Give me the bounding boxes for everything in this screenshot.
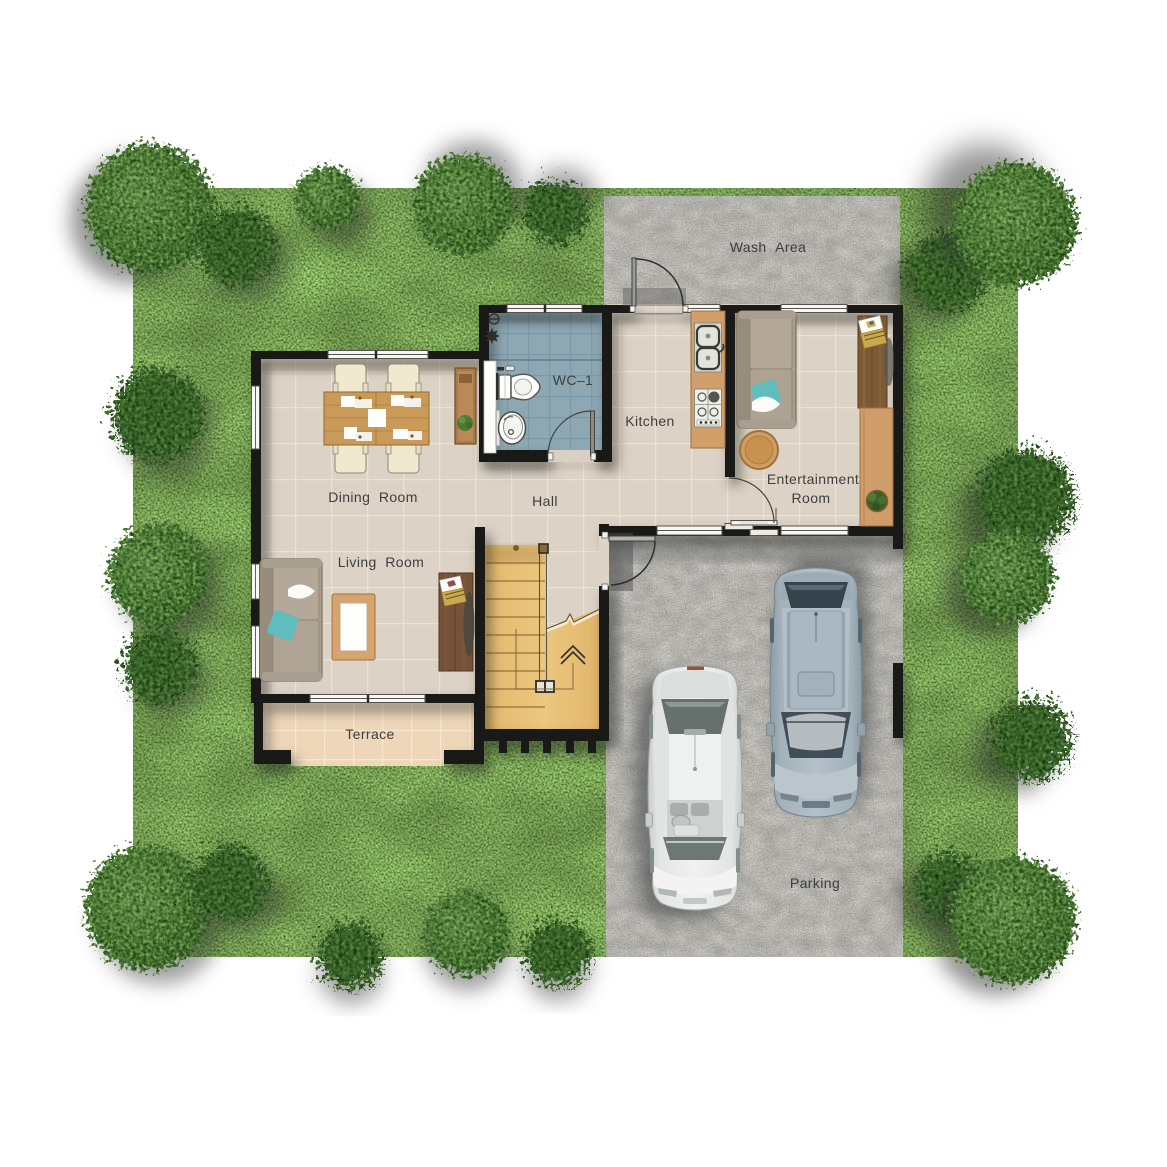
svg-text:Entertainment: Entertainment [767, 471, 859, 487]
svg-text:Room: Room [792, 490, 831, 506]
svg-text:WC–1: WC–1 [553, 372, 594, 388]
svg-text:Living Room: Living Room [338, 554, 425, 570]
svg-text:Terrace: Terrace [345, 726, 394, 742]
svg-text:Parking: Parking [790, 875, 840, 891]
svg-text:Kitchen: Kitchen [625, 413, 675, 429]
svg-text:Wash Area: Wash Area [730, 239, 807, 255]
svg-text:Hall: Hall [532, 493, 558, 509]
svg-text:Dining Room: Dining Room [328, 489, 418, 505]
